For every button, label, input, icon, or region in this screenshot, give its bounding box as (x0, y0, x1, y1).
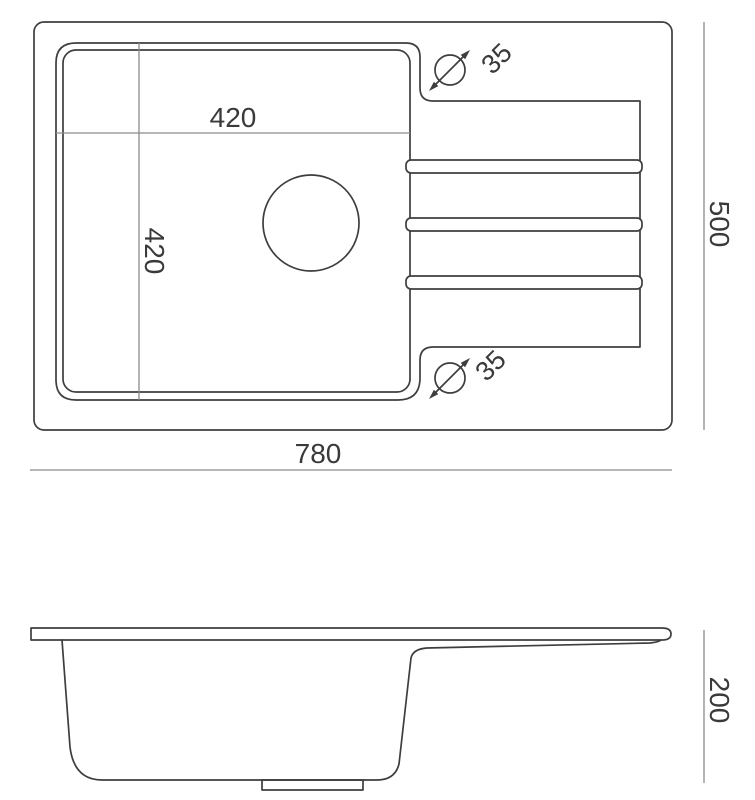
dim-label-tap-hole-top: 35 (475, 37, 517, 79)
dim-label-overall-width: 780 (295, 438, 342, 469)
drain-stub (262, 780, 363, 790)
tap-hole-symbol-top (429, 50, 470, 91)
dim-label-bowl-width: 420 (210, 102, 257, 133)
top-view (34, 22, 672, 430)
rim-profile (31, 628, 671, 640)
bowl-profile (62, 640, 661, 780)
drainboard-rib (406, 160, 642, 173)
dim-label-tap-hole-bottom: 35 (469, 344, 511, 386)
sink-drawing-svg: 420 420 780 500 200 35 35 (0, 0, 755, 800)
dim-label-bowl-depth: 420 (139, 228, 170, 275)
drainboard-rib (406, 218, 642, 231)
technical-drawing: 420 420 780 500 200 35 35 (0, 0, 755, 800)
dim-label-overall-depth: 500 (704, 201, 735, 248)
diameter-slash-line (433, 54, 466, 87)
dim-label-height: 200 (704, 677, 735, 724)
diameter-slash-line (433, 362, 466, 395)
drain-hole-circle (263, 175, 359, 271)
drainboard-rib (406, 276, 642, 289)
tap-hole-symbol-bottom (429, 358, 470, 399)
side-view (31, 628, 671, 790)
